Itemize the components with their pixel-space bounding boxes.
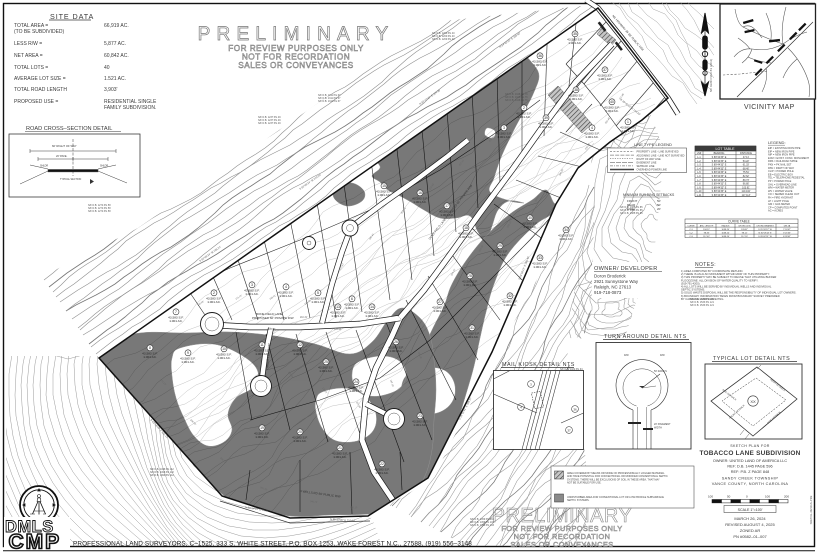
- svg-text:S 89°44'33" E: S 89°44'33" E: [712, 183, 727, 186]
- svg-text:SCALE 1"=100': SCALE 1"=100': [738, 508, 763, 512]
- svg-text:1.001 AC.: 1.001 AC.: [440, 213, 454, 217]
- svg-text:WIDTH: WIDTH: [654, 426, 662, 429]
- svg-text:60,842 AC.: 60,842 AC.: [104, 53, 129, 59]
- svg-text:S 89°44'33" E: S 89°44'33" E: [712, 160, 727, 163]
- svg-text:66,919 AC.: 66,919 AC.: [104, 23, 129, 29]
- svg-text:1.001 AC.: 1.001 AC.: [389, 349, 403, 353]
- svg-text:SETBACK LINE: SETBACK LINE: [637, 165, 655, 168]
- svg-text:TOTAL ROAD LENGTH: TOTAL ROAD LENGTH: [14, 87, 67, 93]
- svg-text:1.001 AC.: 1.001 AC.: [459, 235, 473, 239]
- svg-text:20': 20': [657, 207, 661, 211]
- svg-text:1.001 AC.: 1.001 AC.: [279, 294, 293, 298]
- svg-text:(TO BE SUBDIVIDED): (TO BE SUBDIVIDED): [14, 29, 65, 35]
- svg-text:PROPERTY LINE - LINE SURVEYED: PROPERTY LINE - LINE SURVEYED: [637, 151, 679, 154]
- svg-text:1.001 AC.: 1.001 AC.: [413, 423, 427, 427]
- svg-text:EASEMENT LINE: EASEMENT LINE: [637, 162, 657, 165]
- svg-text:LESS R/W =: LESS R/W =: [14, 41, 42, 47]
- svg-text:1.001 AC.: 1.001 AC.: [559, 237, 573, 241]
- svg-text:N/F D.B. 1385 PG 85: N/F D.B. 1385 PG 85: [620, 212, 643, 215]
- svg-text:1.001 AC.: 1.001 AC.: [463, 283, 477, 287]
- svg-text:6°28'42": 6°28'42": [783, 236, 791, 238]
- svg-text:N/F D.B. 1237 PG 49: N/F D.B. 1237 PG 49: [258, 122, 281, 125]
- svg-text:260.35': 260.35': [232, 333, 240, 335]
- svg-text:117.42': 117.42': [703, 236, 710, 238]
- svg-text:RIGHT OF WAY LINE: RIGHT OF WAY LINE: [637, 158, 662, 161]
- svg-text:R/W: R/W: [660, 354, 665, 357]
- svg-text:DELTA: DELTA: [784, 224, 791, 227]
- svg-text:1.001 AC.: 1.001 AC.: [585, 135, 599, 139]
- svg-text:S 89°44'33" E: S 89°44'33" E: [712, 167, 727, 170]
- svg-text:RADIUS: RADIUS: [722, 224, 730, 227]
- svg-text:4: 4: [285, 285, 287, 289]
- svg-text:47.11': 47.11': [743, 156, 750, 159]
- svg-text:11: 11: [260, 343, 264, 347]
- svg-text:MAIL KIOSK DETAIL NTS: MAIL KIOSK DETAIL NTS: [502, 362, 575, 368]
- svg-text:210.31': 210.31': [300, 317, 308, 319]
- svg-text:1.001 AC.: 1.001 AC.: [569, 97, 583, 101]
- svg-text:MINIMUM BUILDING SETBACKS: MINIMUM BUILDING SETBACKS: [623, 193, 675, 197]
- svg-text:82.62': 82.62': [743, 175, 750, 178]
- svg-text:REF: P.B. Z PAGE 848: REF: P.B. Z PAGE 848: [731, 470, 769, 474]
- svg-text:CMP: CMP: [9, 531, 62, 553]
- svg-text:1.001 AC.: 1.001 AC.: [293, 352, 307, 356]
- svg-text:36: 36: [538, 54, 542, 58]
- svg-text:N/F D.B. 1274 PG 58: N/F D.B. 1274 PG 58: [88, 210, 111, 213]
- svg-text:133.87': 133.87': [741, 229, 748, 231]
- svg-text:26: 26: [394, 340, 398, 344]
- svg-text:N/F D.B. 1496 PG 112: N/F D.B. 1496 PG 112: [150, 474, 174, 477]
- svg-text:3: 3: [251, 283, 253, 287]
- svg-text:50' RADIUS: 50' RADIUS: [654, 370, 667, 373]
- svg-text:1.001 AC.: 1.001 AC.: [293, 439, 307, 443]
- svg-text:7: 7: [175, 310, 177, 314]
- svg-text:17: 17: [445, 204, 449, 208]
- svg-text:6: 6: [351, 297, 353, 301]
- svg-text:1.001 AC.: 1.001 AC.: [523, 225, 537, 229]
- svg-text:1.001 AC.: 1.001 AC.: [517, 115, 531, 119]
- svg-text:96.80': 96.80': [743, 183, 750, 186]
- svg-text:NET AREA =: NET AREA =: [14, 53, 43, 59]
- svg-text:SANDY CREEK TOWNSHIP: SANDY CREEK TOWNSHIP: [722, 477, 779, 481]
- svg-text:100: 100: [708, 495, 713, 499]
- svg-text:PROPOSED USE =: PROPOSED USE =: [14, 99, 58, 105]
- svg-text:CHORD BEARING: CHORD BEARING: [756, 224, 774, 227]
- svg-text:110.102': 110.102': [742, 190, 751, 193]
- svg-text:39: 39: [544, 116, 548, 120]
- svg-text:1.001 AC.: 1.001 AC.: [598, 77, 612, 81]
- svg-text:N 30°09'44" E: N 30°09'44" E: [759, 233, 773, 235]
- svg-text:1.001 AC.: 1.001 AC.: [365, 314, 379, 318]
- svg-text:1.001 AC.: 1.001 AC.: [568, 41, 582, 45]
- svg-text:LN#: LN#: [697, 152, 702, 155]
- svg-text:SEPTIC SYSTEMS.: SEPTIC SYSTEMS.: [567, 499, 590, 502]
- svg-text:4: 4: [591, 126, 593, 130]
- svg-text:OWNER: UNITED LAND OF AMERICA: OWNER: UNITED LAND OF AMERICA LLC: [713, 459, 788, 463]
- svg-text:L-10: L-10: [697, 190, 702, 193]
- svg-text:68.40': 68.40': [743, 167, 750, 170]
- svg-text:NOT BE SUITABLE FOR USE.: NOT BE SUITABLE FOR USE.: [567, 482, 602, 485]
- svg-text:1.001 AC.: 1.001 AC.: [319, 369, 333, 373]
- svg-text:N/F D.B. 1348 PG 76: N/F D.B. 1348 PG 76: [505, 99, 528, 102]
- svg-text:S 89°44'33" E: S 89°44'33" E: [712, 190, 727, 193]
- svg-text:1.001 AC.: 1.001 AC.: [375, 471, 389, 475]
- svg-text:40: 40: [104, 65, 110, 71]
- svg-text:3: 3: [503, 126, 505, 130]
- svg-text:S 89°44'33" E: S 89°44'33" E: [712, 156, 727, 159]
- svg-text:N/F D.B. 1311 PG 67: N/F D.B. 1311 PG 67: [318, 100, 341, 103]
- svg-text:30: 30: [528, 216, 532, 220]
- svg-text:SHLDR: SHLDR: [40, 165, 48, 168]
- svg-text:20: 20: [298, 430, 302, 434]
- svg-text:S 89°44'33" E: S 89°44'33" E: [712, 171, 727, 174]
- svg-text:TYPICAL LOT DETAIL NTS: TYPICAL LOT DETAIL NTS: [713, 356, 790, 362]
- svg-text:S 89°44'33" E: S 89°44'33" E: [712, 186, 727, 189]
- svg-text:1.001 AC.: 1.001 AC.: [311, 300, 325, 304]
- svg-text:Doron Broderick: Doron Broderick: [594, 274, 627, 279]
- svg-text:28: 28: [468, 274, 472, 278]
- svg-text:24: 24: [354, 380, 358, 384]
- svg-text:XX: XX: [750, 399, 756, 404]
- svg-text:134.12': 134.12': [703, 229, 710, 231]
- svg-text:ADJOINING LINE - LINE NOT SURV: ADJOINING LINE - LINE NOT SURVEYED: [637, 154, 685, 157]
- svg-text:R/W: R/W: [624, 354, 629, 357]
- svg-text:1.001 AC.: 1.001 AC.: [255, 435, 269, 439]
- svg-text:1: 1: [627, 120, 629, 124]
- svg-text:35: 35: [573, 32, 577, 36]
- svg-text:L-11: L-11: [697, 194, 702, 197]
- svg-text:29: 29: [498, 244, 502, 248]
- svg-text:22: 22: [380, 462, 384, 466]
- svg-text:3,903': 3,903': [104, 87, 118, 93]
- svg-text:34: 34: [564, 228, 568, 232]
- svg-text:1.001 AC.: 1.001 AC.: [493, 253, 507, 257]
- svg-text:376.96': 376.96': [334, 329, 342, 331]
- svg-text:CHORD LEN.: CHORD LEN.: [738, 225, 751, 227]
- svg-text:50: 50: [727, 495, 731, 499]
- svg-text:MARCH 26, 2024: MARCH 26, 2024: [734, 516, 766, 521]
- svg-text:1.001 AC.: 1.001 AC.: [621, 129, 635, 133]
- svg-text:54.22': 54.22': [743, 160, 750, 163]
- svg-text:S 29°18'12" W: S 29°18'12" W: [758, 229, 771, 231]
- svg-text:1.001 AC.: 1.001 AC.: [349, 389, 363, 393]
- svg-text:LEGEND:: LEGEND:: [768, 140, 786, 145]
- svg-text:SIDE: SIDE: [627, 207, 634, 211]
- svg-text:S 28°02'51" W: S 28°02'51" W: [758, 236, 771, 238]
- svg-text:37: 37: [567, 428, 571, 432]
- svg-text:98.12': 98.12': [742, 233, 748, 235]
- svg-text:SALES OR CONVEYANCES: SALES OR CONVEYANCES: [238, 61, 353, 70]
- svg-text:27: 27: [438, 300, 442, 304]
- svg-text:OWNER/ DEVELOPER: OWNER/ DEVELOPER: [594, 266, 658, 272]
- svg-text:1.001 AC.: 1.001 AC.: [433, 309, 447, 313]
- svg-text:2: 2: [213, 291, 215, 295]
- svg-text:CURVE TABLE: CURVE TABLE: [728, 220, 750, 224]
- svg-text:14: 14: [370, 305, 374, 309]
- svg-text:BY CAROLINA LAND SURVEYING.: BY CAROLINA LAND SURVEYING.: [681, 297, 724, 301]
- svg-text:1.001 AC.: 1.001 AC.: [605, 109, 619, 113]
- svg-text:9: 9: [187, 351, 189, 355]
- svg-text:36: 36: [573, 407, 577, 411]
- svg-text:DISTANCE: DISTANCE: [740, 152, 752, 155]
- svg-text:2: 2: [523, 106, 525, 110]
- svg-text:Raleigh, NC 27613: Raleigh, NC 27613: [594, 285, 632, 290]
- svg-text:1.001 AC.: 1.001 AC.: [413, 200, 427, 204]
- svg-text:1.001 AC.: 1.001 AC.: [533, 265, 547, 269]
- svg-text:13: 13: [336, 305, 340, 309]
- svg-text:SHLDR: SHLDR: [100, 165, 108, 168]
- svg-text:15: 15: [382, 184, 386, 188]
- svg-text:31: 31: [470, 326, 474, 330]
- svg-text:1.001 AC.: 1.001 AC.: [465, 335, 479, 339]
- svg-text:103.91': 103.91': [742, 186, 750, 189]
- svg-text:185.47': 185.47': [268, 329, 276, 331]
- svg-text:40: 40: [610, 100, 614, 104]
- svg-text:2921 Sunnystone Way: 2921 Sunnystone Way: [594, 279, 639, 284]
- svg-text:SKETCH PLAN FOR: SKETCH PLAN FOR: [730, 444, 770, 448]
- svg-text:NOTES:: NOTES:: [695, 262, 716, 268]
- svg-text:38: 38: [574, 88, 578, 92]
- svg-text:5,877 AC.: 5,877 AC.: [104, 41, 126, 47]
- svg-text:ARC LENGTH: ARC LENGTH: [700, 224, 714, 227]
- svg-text:1.001 AC.: 1.001 AC.: [217, 356, 231, 360]
- svg-text:8: 8: [149, 346, 151, 350]
- svg-text:TURN AROUND DETAIL NTS: TURN AROUND DETAIL NTS: [604, 334, 687, 340]
- svg-text:117.18': 117.18': [741, 236, 748, 238]
- svg-text:75.51': 75.51': [743, 171, 750, 174]
- svg-text:1.001 AC.: 1.001 AC.: [331, 314, 345, 318]
- svg-text:REVISED AUGUST 4, 2025: REVISED AUGUST 4, 2025: [725, 522, 775, 527]
- svg-text:N/F D.B. 1200 PG 40: N/F D.B. 1200 PG 40: [432, 38, 455, 41]
- svg-text:1.001 AC.: 1.001 AC.: [333, 455, 347, 459]
- svg-text:20' PAVE.: 20' PAVE.: [56, 154, 68, 158]
- svg-text:12: 12: [298, 343, 302, 347]
- svg-text:N/F D.B. 1533 PG 121: N/F D.B. 1533 PG 121: [690, 304, 715, 307]
- svg-text:S 89°44'33" E: S 89°44'33" E: [712, 175, 727, 178]
- svg-text:NC GRID NAD 83 (2011): NC GRID NAD 83 (2011): [709, 59, 713, 92]
- svg-text:919-718-0873: 919-718-0873: [594, 290, 622, 295]
- svg-text:VANCE COUNTY, NORTH CAROLINA: VANCE COUNTY, NORTH CAROLINA: [712, 482, 789, 486]
- svg-text:BEARING: BEARING: [714, 152, 725, 155]
- svg-text:1.001 AC.: 1.001 AC.: [143, 355, 157, 359]
- svg-text:33: 33: [538, 256, 542, 260]
- svg-text:SALES OR CONVEYANCES: SALES OR CONVEYANCES: [510, 540, 613, 549]
- svg-text:89.73': 89.73': [743, 179, 750, 182]
- svg-text:CURVE: CURVE: [687, 225, 695, 227]
- svg-text:21: 21: [338, 446, 342, 450]
- svg-text:37: 37: [603, 68, 607, 72]
- svg-text:REF: D.B. 1445 PAGE 596: REF: D.B. 1445 PAGE 596: [727, 465, 772, 469]
- svg-text:1.001 AC.: 1.001 AC.: [345, 306, 359, 310]
- svg-text:18: 18: [464, 226, 468, 230]
- svg-text:1.001 AC.: 1.001 AC.: [497, 135, 511, 139]
- svg-text:60' RIGHT OF WAY: 60' RIGHT OF WAY: [52, 144, 77, 148]
- svg-text:1.001 AC.: 1.001 AC.: [255, 352, 269, 356]
- svg-text:16: 16: [418, 191, 422, 195]
- svg-text:ZONED AR: ZONED AR: [740, 528, 761, 533]
- svg-text:AVERAGE LOT SIZE =: AVERAGE LOT SIZE =: [14, 76, 66, 82]
- svg-text:PN #0582–01–007: PN #0582–01–007: [733, 534, 767, 539]
- svg-text:PRELIMINARY: PRELIMINARY: [198, 24, 395, 45]
- svg-text:TOBACCO LANE SUBDIVISION: TOBACCO LANE SUBDIVISION: [699, 450, 800, 457]
- svg-text:1.001 AC.: 1.001 AC.: [207, 300, 221, 304]
- svg-text:1.001 AC.: 1.001 AC.: [169, 319, 183, 323]
- svg-text:1.001 AC.: 1.001 AC.: [245, 292, 259, 296]
- svg-text:19: 19: [260, 426, 264, 430]
- svg-text:98.33': 98.33': [704, 233, 710, 235]
- svg-text:1038.24': 1038.24': [722, 229, 731, 231]
- svg-text:1.001 AC.: 1.001 AC.: [503, 303, 517, 307]
- svg-text:1.001 AC.: 1.001 AC.: [377, 193, 391, 197]
- svg-text:PROPOSED 60' PRIVATE R/W: PROPOSED 60' PRIVATE R/W: [252, 316, 294, 320]
- svg-text:FAMILY SUBDIVISION.: FAMILY SUBDIVISION.: [104, 105, 156, 111]
- svg-text:117.113': 117.113': [742, 194, 751, 197]
- svg-text:S 89°44'33" E: S 89°44'33" E: [712, 179, 727, 182]
- svg-text:7°24'07": 7°24'07": [783, 229, 791, 231]
- svg-text:100: 100: [765, 495, 770, 499]
- svg-text:TYPICAL SECTION: TYPICAL SECTION: [60, 178, 81, 181]
- svg-text:AC = ACRES: AC = ACRES: [768, 209, 783, 213]
- svg-text:5°25'33": 5°25'33": [783, 233, 791, 235]
- svg-text:SKETCH–DESIGN–PRE: SKETCH–DESIGN–PRE: [809, 495, 813, 524]
- svg-text:OVERHEAD POWER LINE: OVERHEAD POWER LINE: [637, 169, 668, 172]
- svg-text:1.001 AC.: 1.001 AC.: [539, 125, 553, 129]
- svg-text:5: 5: [317, 291, 319, 295]
- svg-text:TOTAL LOTS =: TOTAL LOTS =: [14, 65, 48, 71]
- svg-text:32: 32: [508, 294, 512, 298]
- svg-text:200: 200: [784, 495, 789, 499]
- svg-text:S 89°44'33" E: S 89°44'33" E: [712, 194, 727, 197]
- svg-text:PROFESSIONAL LAND SURVEYORS, C: PROFESSIONAL LAND SURVEYORS, C–1525, 333…: [73, 541, 472, 548]
- svg-text:1.521 AC.: 1.521 AC.: [104, 76, 126, 82]
- svg-text:1038.24': 1038.24': [722, 236, 731, 238]
- svg-text:S 89°44'33" E: S 89°44'33" E: [712, 164, 727, 167]
- svg-text:LOT TABLE: LOT TABLE: [716, 147, 736, 151]
- svg-text:1.001 AC.: 1.001 AC.: [181, 360, 195, 364]
- svg-text:23: 23: [418, 414, 422, 418]
- svg-text:10: 10: [222, 347, 226, 351]
- svg-text:VICINITY MAP: VICINITY MAP: [744, 104, 795, 111]
- svg-text:LINE TYPE LEGEND: LINE TYPE LEGEND: [634, 142, 672, 147]
- svg-text:1038.24': 1038.24': [722, 233, 731, 235]
- svg-text:25: 25: [324, 360, 328, 364]
- svg-text:1.001 AC.: 1.001 AC.: [533, 63, 547, 67]
- svg-text:61.33': 61.33': [743, 164, 750, 167]
